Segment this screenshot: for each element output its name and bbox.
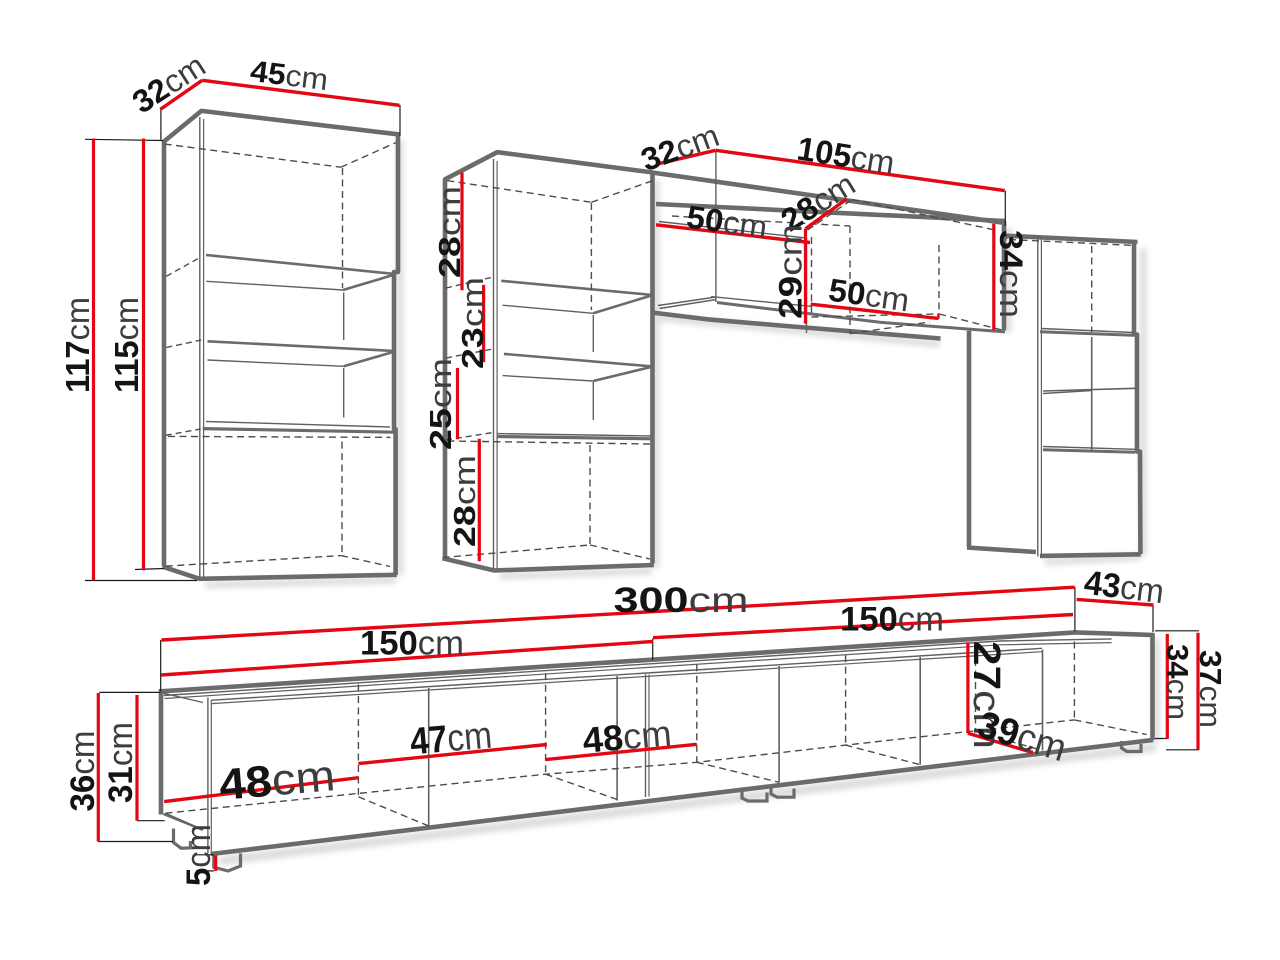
svg-text:28cm: 28cm: [432, 186, 467, 278]
svg-text:48cm: 48cm: [217, 751, 337, 810]
svg-text:23cm: 23cm: [455, 277, 490, 369]
svg-text:300cm: 300cm: [614, 581, 749, 620]
svg-text:150cm: 150cm: [360, 625, 464, 663]
svg-text:31cm: 31cm: [102, 722, 140, 803]
svg-text:47cm: 47cm: [408, 715, 493, 764]
svg-text:28cm: 28cm: [447, 455, 482, 547]
svg-text:5cm: 5cm: [180, 824, 218, 886]
svg-text:150cm: 150cm: [840, 601, 944, 639]
svg-text:29cm: 29cm: [773, 224, 809, 319]
svg-text:34cm: 34cm: [993, 230, 1029, 318]
svg-text:48cm: 48cm: [581, 712, 673, 761]
svg-text:36cm: 36cm: [64, 731, 102, 812]
svg-text:115cm: 115cm: [108, 297, 145, 393]
svg-text:117cm: 117cm: [59, 297, 96, 393]
svg-text:37cm: 37cm: [1194, 650, 1229, 728]
svg-text:25cm: 25cm: [423, 358, 458, 450]
svg-text:34cm: 34cm: [1161, 644, 1196, 720]
